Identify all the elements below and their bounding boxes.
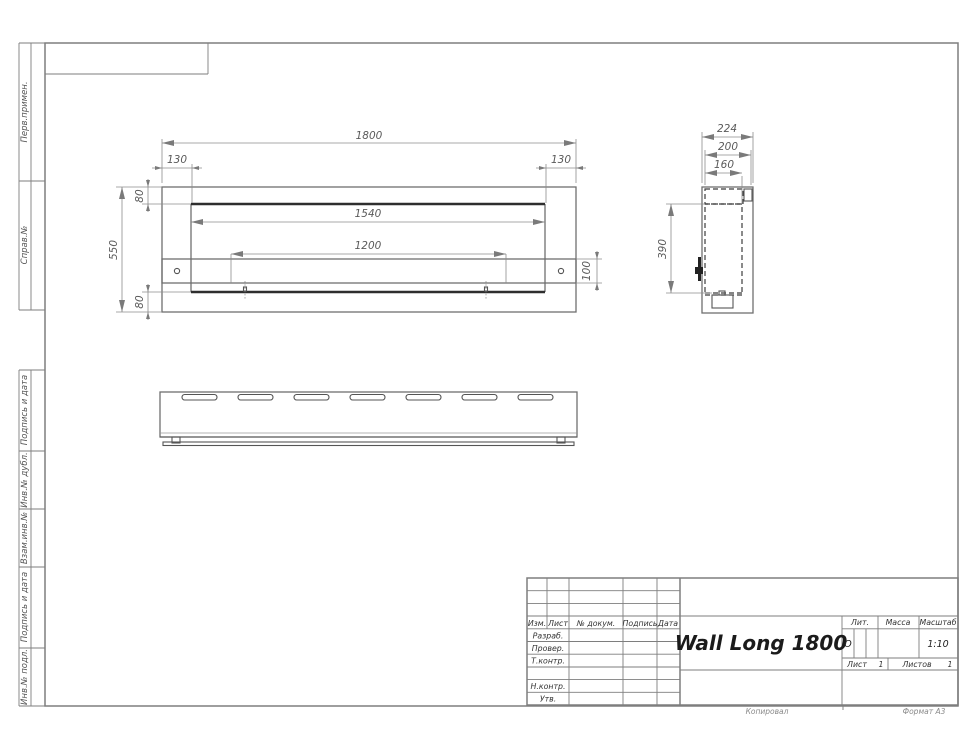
- bottom-view: [160, 392, 577, 446]
- strip-label-inv-podl: Инв.№ подл.: [20, 649, 30, 705]
- svg-text:390: 390: [657, 239, 669, 259]
- front-view: 1800 130 130 80: [108, 130, 602, 320]
- dim-80-top: 80: [116, 179, 191, 212]
- strip-label-podpis-data-1: Подпись и дата: [20, 375, 30, 445]
- margin-strip-lower: Подпись и дата Инв.№ дубл. Взам.инв.№ По…: [19, 370, 45, 706]
- strip-label-inv-dubl: Инв.№ дубл.: [20, 452, 30, 507]
- scale-label: Масштаб: [919, 618, 956, 627]
- dim-1200: 1200: [231, 240, 506, 283]
- svg-text:130: 130: [167, 154, 187, 166]
- lit-mass-scale: Лит. Масса Масштаб О 1:10: [844, 618, 956, 650]
- mounting-band: [162, 259, 576, 283]
- margin-strip-upper: Перв.примен. Справ.№: [19, 43, 45, 310]
- scale-value: 1:10: [927, 639, 948, 650]
- role-utv: Утв.: [540, 695, 556, 704]
- sheet-frame: Перв.примен. Справ.№ Подпись и дата Инв.…: [19, 43, 958, 706]
- svg-text:160: 160: [714, 159, 734, 171]
- sheets-label: Листов: [901, 660, 932, 669]
- dim-130-left: 130: [152, 154, 202, 203]
- col-list: Лист: [547, 619, 568, 628]
- footer: Копировал Формат А3: [746, 707, 946, 716]
- sheets-value: 1: [948, 660, 953, 669]
- svg-text:200: 200: [718, 141, 738, 153]
- dim-130-right: 130: [536, 154, 586, 203]
- sheet-count-row: Лист 1 Листов 1: [846, 660, 952, 669]
- svg-text:80: 80: [134, 189, 146, 203]
- sheet-label: Лист: [846, 660, 867, 669]
- vent-slots: [182, 395, 553, 401]
- mount-hole-left: [174, 268, 179, 273]
- svg-text:130: 130: [551, 154, 571, 166]
- document-title: Wall Long 1800: [675, 631, 848, 655]
- col-izm: Изм.: [528, 619, 546, 628]
- svg-text:100: 100: [581, 261, 593, 281]
- top-left-box: [45, 43, 208, 74]
- svg-text:224: 224: [717, 123, 737, 135]
- col-sign: Подпись: [622, 619, 657, 628]
- dim-100: 100: [576, 251, 602, 291]
- svg-text:550: 550: [108, 240, 120, 260]
- fastener-marks: [244, 281, 488, 300]
- dim-550: 550: [108, 187, 162, 312]
- base-plate: [163, 442, 574, 446]
- strip-label-podpis-data-2: Подпись и дата: [20, 572, 30, 642]
- footer-format: Формат А3: [903, 707, 946, 716]
- bottom-outline: [160, 392, 577, 437]
- drawing-canvas: Перв.примен. Справ.№ Подпись и дата Инв.…: [0, 0, 970, 749]
- role-prover: Провер.: [532, 644, 564, 653]
- strip-label-vzam-inv: Взам.инв.№: [20, 512, 30, 564]
- svg-text:80: 80: [134, 295, 146, 309]
- side-view: 224 200 160 390: [657, 123, 753, 313]
- lit-value: О: [844, 639, 852, 650]
- mount-hole-right: [558, 268, 563, 273]
- title-block: Изм. Лист № докум. Подпись Дата Разраб. …: [527, 578, 958, 710]
- sheet-value: 1: [879, 660, 884, 669]
- col-date: Дата: [657, 619, 678, 628]
- footer-copied: Копировал: [746, 707, 789, 716]
- dim-224: 224: [702, 123, 753, 183]
- drawing-sheet: Перв.примен. Справ.№ Подпись и дата Инв.…: [0, 0, 970, 749]
- dim-1800: 1800: [162, 130, 576, 183]
- side-hidden-body: [705, 204, 742, 295]
- lit-label: Лит.: [850, 618, 869, 627]
- side-bottom-box: [712, 295, 733, 308]
- dim-160: 160: [705, 159, 742, 204]
- side-outline: [702, 187, 753, 313]
- strip-label-sprav: Справ.№: [20, 226, 30, 265]
- col-doc: № докум.: [576, 619, 615, 628]
- dim-1540: 1540: [191, 208, 545, 222]
- dim-390: 390: [657, 204, 712, 293]
- svg-text:1200: 1200: [355, 240, 382, 252]
- svg-text:1540: 1540: [355, 208, 382, 220]
- mass-label: Масса: [886, 618, 911, 627]
- revision-header: Изм. Лист № докум. Подпись Дата: [528, 619, 678, 628]
- role-nkontr: Н.контр.: [531, 682, 566, 691]
- role-tkontr: Т.контр.: [531, 657, 565, 666]
- role-razrab: Разраб.: [533, 632, 564, 641]
- strip-label-perv-primen: Перв.примен.: [20, 81, 30, 142]
- svg-text:1800: 1800: [356, 130, 383, 142]
